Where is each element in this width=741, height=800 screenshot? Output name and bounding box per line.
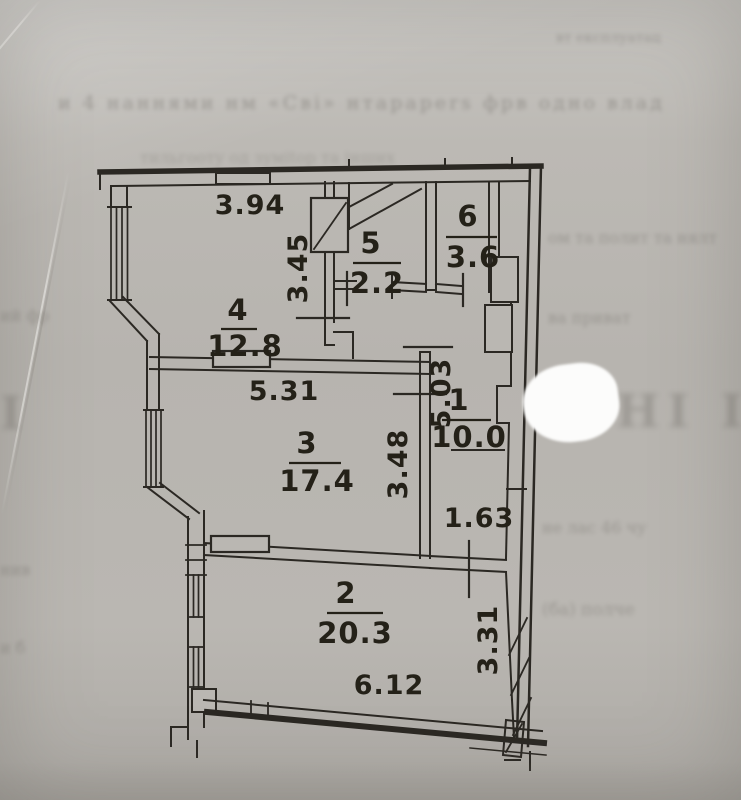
room-6-number: 6 [457, 199, 478, 233]
dim-room2-right: 3.31 [473, 605, 504, 676]
window-room4-left [111, 207, 128, 300]
labels-group: 3.94 5.31 1.63 6.12 3.45 5.03 3.48 3.31 … [207, 190, 514, 701]
dim-top-width: 3.94 [215, 190, 286, 221]
dim-room3-width: 5.31 [249, 376, 320, 407]
wall-room3-top [150, 357, 430, 374]
dim-hall-bottom: 1.63 [444, 503, 515, 534]
window-room2-left-2 [194, 647, 199, 687]
room-3-label: 3 17.4 [279, 426, 355, 498]
room-5-label: 5 2.2 [350, 226, 404, 300]
window-top-wall [216, 173, 270, 184]
room-3-number: 3 [296, 426, 317, 460]
dim-room3-height: 3.48 [383, 429, 414, 500]
wall-room6-bottom [436, 274, 463, 306]
room-6-label: 6 3.6 [446, 199, 500, 274]
room-3-area: 17.4 [279, 464, 355, 498]
room-5-number: 5 [360, 226, 381, 260]
room-2-number: 2 [335, 576, 356, 610]
door-room2-room3 [211, 536, 269, 552]
dim-room4-height: 3.45 [283, 233, 314, 304]
left-bay-wall-room4 [108, 186, 199, 519]
left-wall-room2 [171, 511, 206, 757]
window-room2-left-1 [194, 575, 199, 617]
room-2-label: 2 20.3 [317, 576, 393, 650]
room-1-area: 10.0 [431, 420, 507, 454]
vent-box-2 [485, 305, 512, 352]
floorplan-drawing: 3.94 5.31 1.63 6.12 3.45 5.03 3.48 3.31 … [0, 0, 741, 800]
scanned-floorplan-page: вт експлуатац и 4 наннями нм «Сві» нтаpa… [0, 0, 741, 800]
room-4-number: 4 [227, 293, 248, 327]
room-4-label: 4 12.8 [207, 293, 283, 363]
room-6-area: 3.6 [446, 240, 500, 274]
duct-corner-room5 [349, 183, 421, 229]
top-exterior-wall [100, 158, 541, 189]
bottom-exterior-wall [192, 689, 546, 770]
room-5-area: 2.2 [350, 266, 404, 300]
window-room3-left [146, 410, 161, 487]
dim-room2-width: 6.12 [354, 670, 425, 701]
room-4-area: 12.8 [207, 329, 283, 363]
wall-room5-room6 [426, 182, 436, 290]
room-1-number: 1 [448, 383, 469, 417]
room-2-area: 20.3 [317, 616, 393, 650]
